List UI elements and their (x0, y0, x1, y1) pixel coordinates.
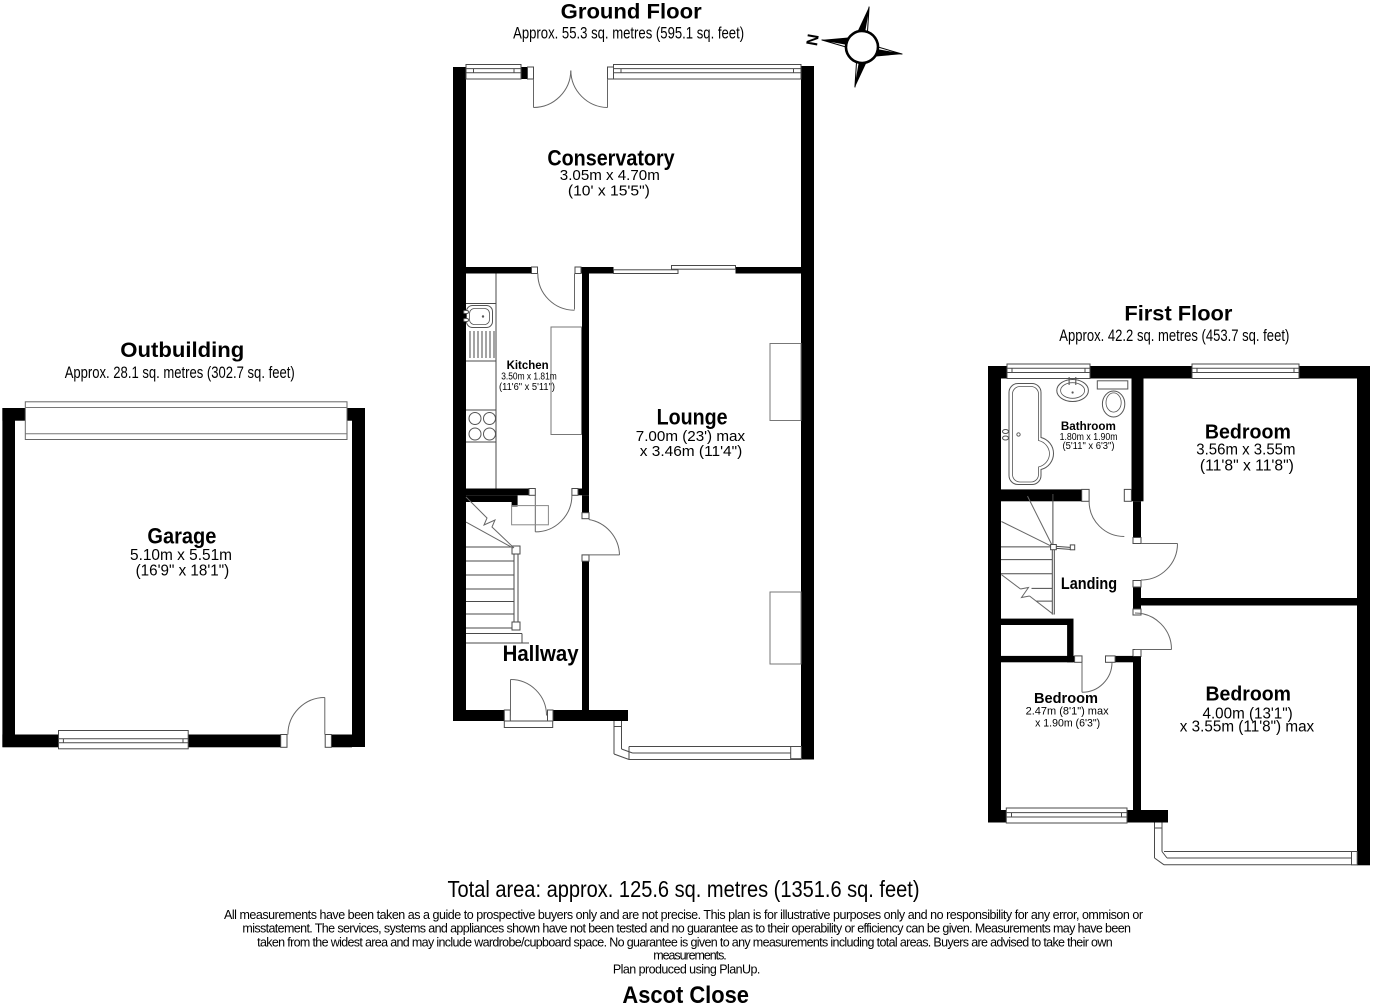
svg-text:Outbuilding: Outbuilding (120, 338, 244, 362)
svg-text:Ascot Close: Ascot Close (622, 982, 749, 1008)
svg-text:First Floor: First Floor (1124, 301, 1233, 325)
svg-text:x 1.90m (6'3"): x 1.90m (6'3") (1035, 717, 1100, 729)
svg-text:x 3.55m (11'8") max: x 3.55m (11'8") max (1180, 719, 1315, 736)
svg-text:Bedroom: Bedroom (1034, 690, 1098, 707)
svg-text:All measurements have been tak: All measurements have been taken as a gu… (224, 908, 1143, 922)
svg-text:3.56m x 3.55m: 3.56m x 3.55m (1196, 442, 1295, 459)
svg-text:Approx. 42.2 sq. metres (453.7: Approx. 42.2 sq. metres (453.7 sq. feet) (1059, 327, 1289, 345)
svg-text:Approx. 55.3 sq. metres (595.1: Approx. 55.3 sq. metres (595.1 sq. feet) (513, 25, 744, 43)
svg-text:Bedroom: Bedroom (1205, 682, 1291, 705)
svg-text:(10' x 15'5"): (10' x 15'5") (568, 183, 650, 200)
svg-text:2.47m (8'1") max: 2.47m (8'1") max (1026, 706, 1109, 718)
svg-text:(5'11" x 6'3"): (5'11" x 6'3") (1063, 441, 1115, 452)
svg-text:Total area: approx. 125.6 sq.: Total area: approx. 125.6 sq. metres (13… (448, 876, 920, 902)
svg-text:3.05m x 4.70m: 3.05m x 4.70m (560, 167, 660, 184)
svg-text:Ground Floor: Ground Floor (561, 0, 703, 23)
svg-text:Lounge: Lounge (657, 405, 728, 430)
svg-text:Approx. 28.1 sq. metres (302.7: Approx. 28.1 sq. metres (302.7 sq. feet) (65, 364, 295, 382)
svg-text:Hallway: Hallway (503, 641, 580, 666)
svg-text:Bedroom: Bedroom (1205, 420, 1291, 443)
svg-text:5.10m x 5.51m: 5.10m x 5.51m (130, 547, 232, 564)
svg-text:Landing: Landing (1061, 575, 1117, 593)
svg-text:(11'6" x 5'11"): (11'6" x 5'11") (499, 382, 555, 393)
svg-text:Garage: Garage (147, 524, 216, 549)
svg-text:misstatement. The services, sy: misstatement. The services, systems and … (242, 922, 1131, 936)
svg-text:x 3.46m (11'4"): x 3.46m (11'4") (640, 443, 743, 460)
svg-text:Plan produced using PlanUp.: Plan produced using PlanUp. (613, 963, 761, 977)
svg-text:(11'8" x 11'8"): (11'8" x 11'8") (1200, 457, 1294, 474)
svg-text:taken from the widest area and: taken from the widest area and may inclu… (257, 935, 1113, 949)
svg-text:measurements.: measurements. (653, 949, 727, 963)
svg-text:Kitchen: Kitchen (507, 358, 549, 372)
svg-text:(16'9" x 18'1"): (16'9" x 18'1") (136, 563, 230, 580)
